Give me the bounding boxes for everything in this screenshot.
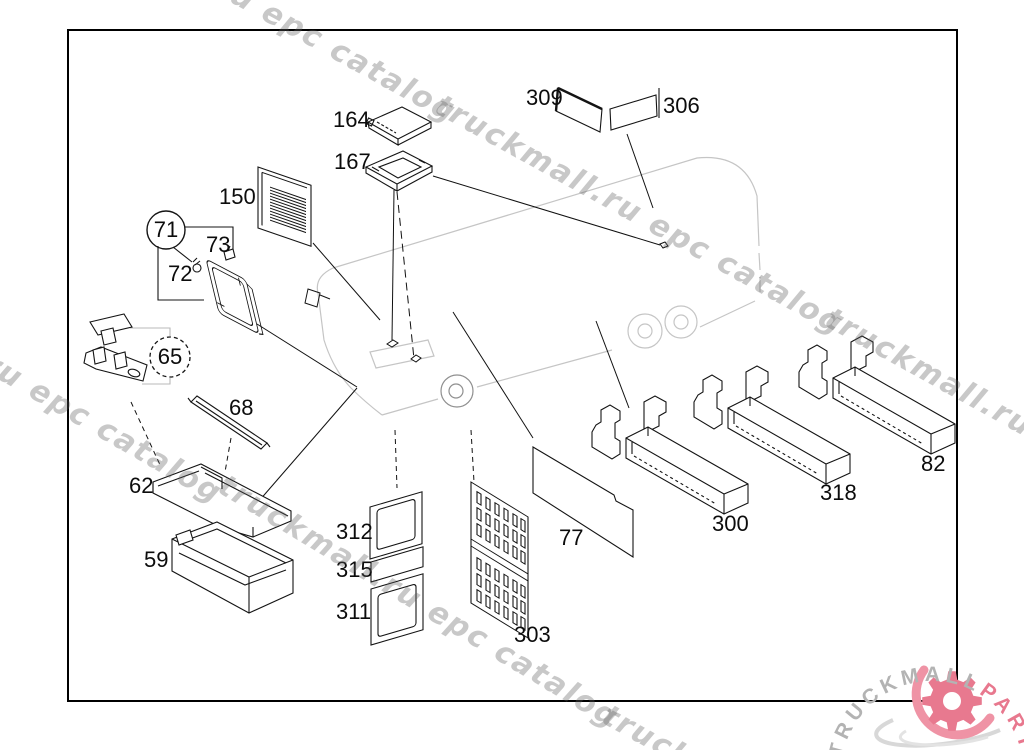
gear-hole xyxy=(943,692,961,710)
part-label-150: 150 xyxy=(219,184,256,209)
part-59-drawing xyxy=(172,522,293,613)
part-label-73: 73 xyxy=(206,232,230,257)
logo-arc-text: TRUCKMALLPARTS xyxy=(0,0,1024,750)
part-167-drawing xyxy=(366,151,432,191)
exploded-parts-diagram: 164 167 150 71 73 72 65 68 62 59 312 315… xyxy=(0,0,1024,750)
part-150-drawing xyxy=(258,167,311,246)
part-label-318: 318 xyxy=(820,480,857,505)
part-label-59: 59 xyxy=(144,547,168,572)
part-label-71: 71 xyxy=(154,217,178,242)
part-label-72: 72 xyxy=(168,261,192,286)
part-164-drawing xyxy=(366,107,431,145)
part-71-frame-drawing xyxy=(206,259,263,336)
part-309-drawing xyxy=(556,88,602,132)
mirror-outline xyxy=(305,289,330,307)
part-label-312: 312 xyxy=(336,519,373,544)
part-303-drawing xyxy=(471,482,528,638)
part-label-303: 303 xyxy=(514,622,551,647)
part-72-drawing xyxy=(193,258,201,272)
part-label-311: 311 xyxy=(336,599,371,624)
part-65-assembly-drawing xyxy=(84,314,147,381)
part-label-315: 315 xyxy=(336,557,373,582)
part-311-drawing xyxy=(371,574,423,645)
truck-cab-outline xyxy=(317,157,760,415)
part-label-167: 167 xyxy=(334,149,371,174)
site-logo: TRUCKMALLPARTS xyxy=(0,0,1024,750)
part-label-82: 82 xyxy=(921,451,945,476)
part-label-77: 77 xyxy=(559,525,583,550)
logo-suffix-text: PARTS xyxy=(0,0,1024,750)
part-label-309: 309 xyxy=(526,85,563,110)
parts-diagram-page: 164 167 150 71 73 72 65 68 62 59 312 315… xyxy=(0,0,1024,750)
part-label-68: 68 xyxy=(229,395,253,420)
front-wheel xyxy=(441,375,473,407)
part-306-drawing xyxy=(610,88,659,130)
part-label-62: 62 xyxy=(129,473,153,498)
part-label-306: 306 xyxy=(663,93,700,118)
part-82-drawing xyxy=(799,336,955,454)
part-label-65: 65 xyxy=(158,344,182,369)
part-label-300: 300 xyxy=(712,511,749,536)
part-300-drawing xyxy=(592,396,748,514)
part-label-164: 164 xyxy=(333,107,370,132)
